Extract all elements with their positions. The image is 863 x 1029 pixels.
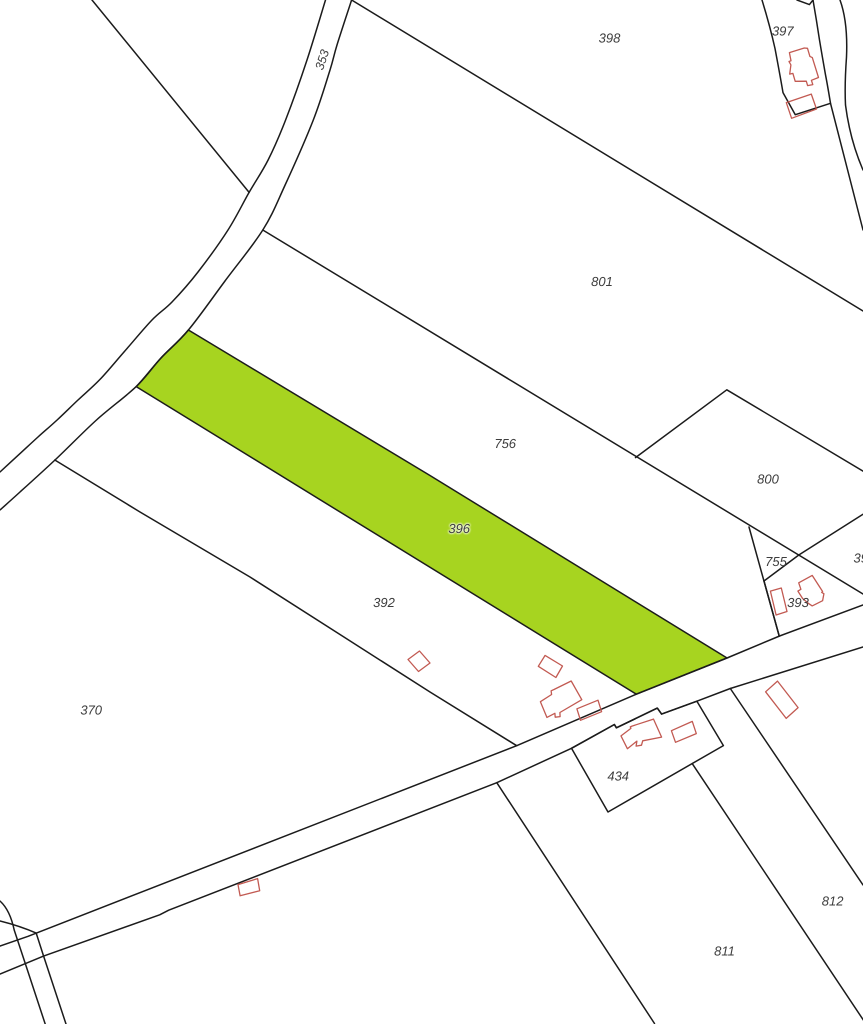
svg-text:811: 811 xyxy=(714,944,735,959)
svg-text:392: 392 xyxy=(373,595,395,610)
svg-text:756: 756 xyxy=(494,436,516,451)
svg-text:397: 397 xyxy=(772,23,794,38)
svg-text:800: 800 xyxy=(757,471,779,486)
svg-text:812: 812 xyxy=(822,893,844,908)
svg-text:398: 398 xyxy=(599,31,621,46)
svg-text:396: 396 xyxy=(448,521,470,536)
svg-text:395: 395 xyxy=(854,551,863,566)
svg-text:370: 370 xyxy=(80,702,102,717)
svg-text:755: 755 xyxy=(765,554,787,569)
svg-text:801: 801 xyxy=(591,274,613,289)
svg-text:434: 434 xyxy=(607,769,629,784)
svg-text:393: 393 xyxy=(787,595,809,610)
